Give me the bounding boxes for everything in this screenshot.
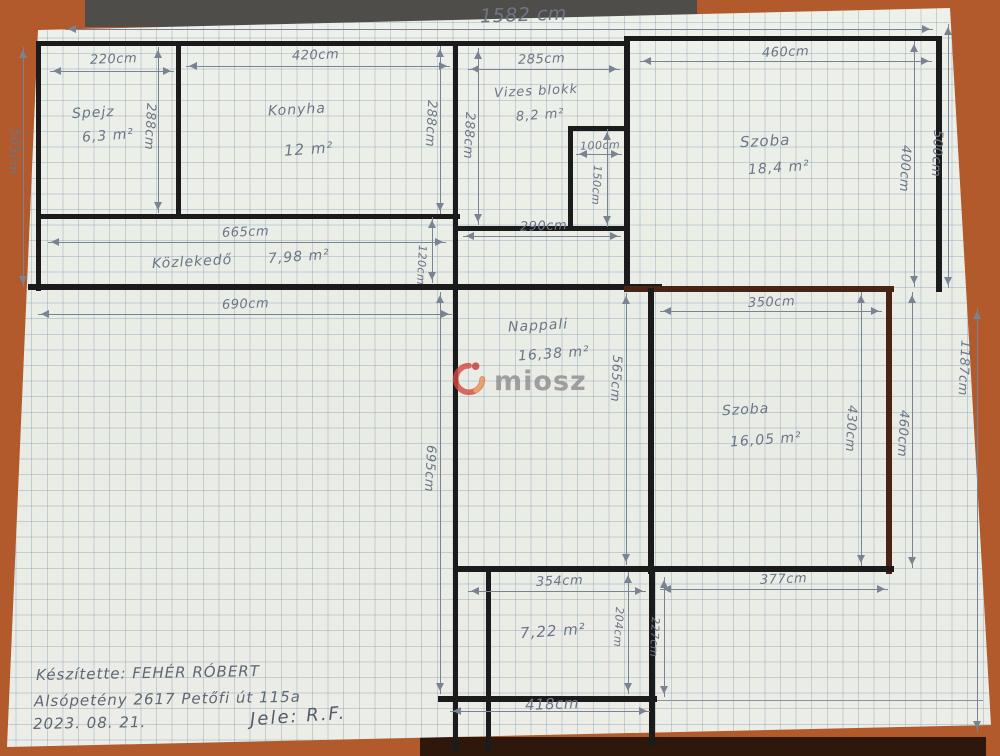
wall (486, 566, 491, 754)
dim-label-room722-height: 204cm (611, 607, 626, 648)
wall (28, 284, 662, 290)
wall (36, 41, 41, 291)
dim-line (50, 71, 174, 72)
dim-label-right-total-height: 1187cm (955, 340, 973, 397)
miosz-watermark: miosz (450, 360, 587, 402)
dim-label-closet-width: 100cm (580, 138, 621, 152)
dim-line (628, 572, 629, 694)
wall (568, 126, 628, 131)
wall (648, 288, 654, 574)
dim-label-room722-width: 354cm (536, 573, 584, 590)
dim-label-row-height-b: 288cm (422, 100, 439, 148)
dim-label-total-width: 1582 cm (480, 2, 568, 27)
dim-line (478, 48, 479, 225)
wall (624, 286, 894, 292)
dim-label-left-height: 505cm (5, 128, 22, 176)
dim-label-bottom-right-width: 377cm (760, 571, 808, 588)
dim-label-hall-outer-width: 690cm (222, 296, 270, 313)
dim-line (440, 292, 441, 694)
wall (624, 36, 942, 41)
wall (886, 288, 892, 574)
dim-line (468, 591, 646, 592)
dim-line (23, 47, 24, 287)
pencil-line (657, 700, 983, 701)
dim-label-hall-inner-width: 665cm (222, 224, 270, 241)
dim-label-bottom-width: 418cm (525, 694, 580, 714)
dim-line (664, 577, 665, 697)
room-name-szoba-2: Szoba (722, 401, 770, 419)
miosz-logo-icon (450, 360, 488, 402)
wall (36, 214, 460, 219)
table-edge-shadow (420, 737, 986, 756)
dim-line (912, 292, 913, 568)
dim-label-row-height-a: 288cm (141, 103, 158, 151)
room-area-konyha: 12 m² (283, 138, 334, 159)
dim-line (660, 589, 888, 590)
dim-label-szoba2-height: 430cm (842, 405, 859, 453)
dim-label-szoba2-width: 350cm (748, 294, 796, 311)
floor-plan-photo: 1582 cm 220cm 420cm 285cm 460cm 665cm 69… (0, 0, 1000, 756)
dim-label-konyha-width: 420cm (292, 47, 340, 64)
dim-label-right-top-height: 500cm (928, 130, 945, 178)
dim-line (948, 24, 949, 288)
wall (38, 41, 630, 46)
dim-line (48, 242, 446, 243)
dim-line (576, 154, 622, 155)
dim-label-vizes-width: 285cm (518, 51, 566, 68)
room-name-nappali: Nappali (508, 316, 569, 335)
wall (176, 44, 181, 217)
dim-label-closet-height: 150cm (589, 165, 604, 206)
dim-label-szoba1-height: 400cm (896, 145, 913, 193)
dim-label-bottom-right-height: 227cm (647, 617, 662, 658)
dim-line (440, 46, 441, 214)
dim-line (463, 236, 621, 237)
wall (624, 36, 630, 292)
dim-line (468, 69, 620, 70)
wall (453, 566, 894, 572)
dim-line (626, 293, 627, 565)
dim-line (660, 311, 882, 312)
dim-label-nappali-width: 290cm (520, 218, 568, 235)
dim-label-row-height-c: 288cm (460, 112, 477, 160)
footer-date: 2023. 08. 21. (33, 713, 147, 733)
dim-line (861, 292, 862, 566)
dim-label-spejz-width: 220cm (90, 51, 138, 68)
dim-line (186, 66, 450, 67)
room-name-konyha: Konyha (268, 100, 327, 119)
dim-label-hall-height: 120cm (414, 245, 429, 286)
dim-line (640, 61, 932, 62)
dim-line (158, 47, 159, 213)
dim-line (38, 314, 452, 315)
dim-label-left-lower-height: 695cm (421, 445, 438, 493)
dim-line (977, 308, 978, 732)
dim-line (65, 29, 933, 30)
dim-label-szoba2-right-height: 460cm (894, 410, 911, 458)
dim-line (432, 217, 433, 283)
dim-label-nappali-height: 565cm (607, 355, 624, 403)
room-name-szoba-1: Szoba (740, 131, 791, 152)
dim-line (914, 41, 915, 287)
miosz-logo-text: miosz (494, 366, 587, 397)
dim-label-szoba1-width: 460cm (762, 44, 810, 61)
room-name-spejz: Spejz (72, 104, 115, 122)
wall (568, 126, 573, 229)
